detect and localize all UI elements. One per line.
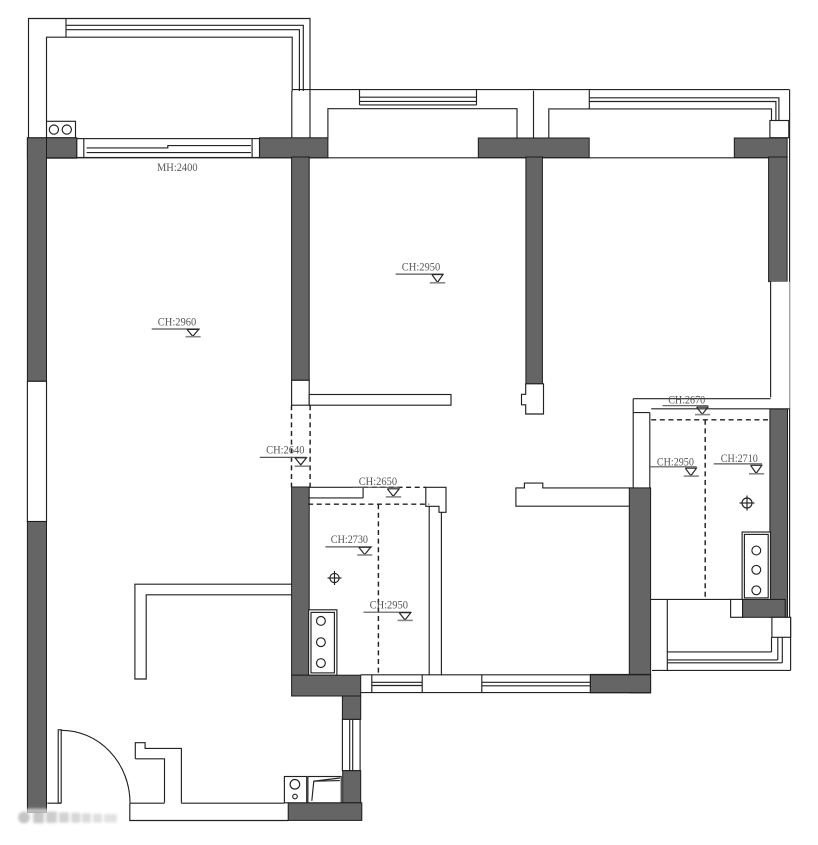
- svg-text:CH:2950: CH:2950: [402, 261, 441, 273]
- svg-text:CH:2640: CH:2640: [266, 444, 305, 456]
- svg-text:CH:2730: CH:2730: [331, 534, 368, 546]
- svg-text:CH:2670: CH:2670: [668, 394, 705, 406]
- svg-text:CH:2710: CH:2710: [721, 453, 758, 465]
- svg-text:MH:2400: MH:2400: [157, 162, 198, 174]
- svg-text:CH:2960: CH:2960: [158, 317, 197, 329]
- svg-text:CH:2650: CH:2650: [359, 476, 398, 488]
- svg-text:CH:2950: CH:2950: [370, 600, 409, 612]
